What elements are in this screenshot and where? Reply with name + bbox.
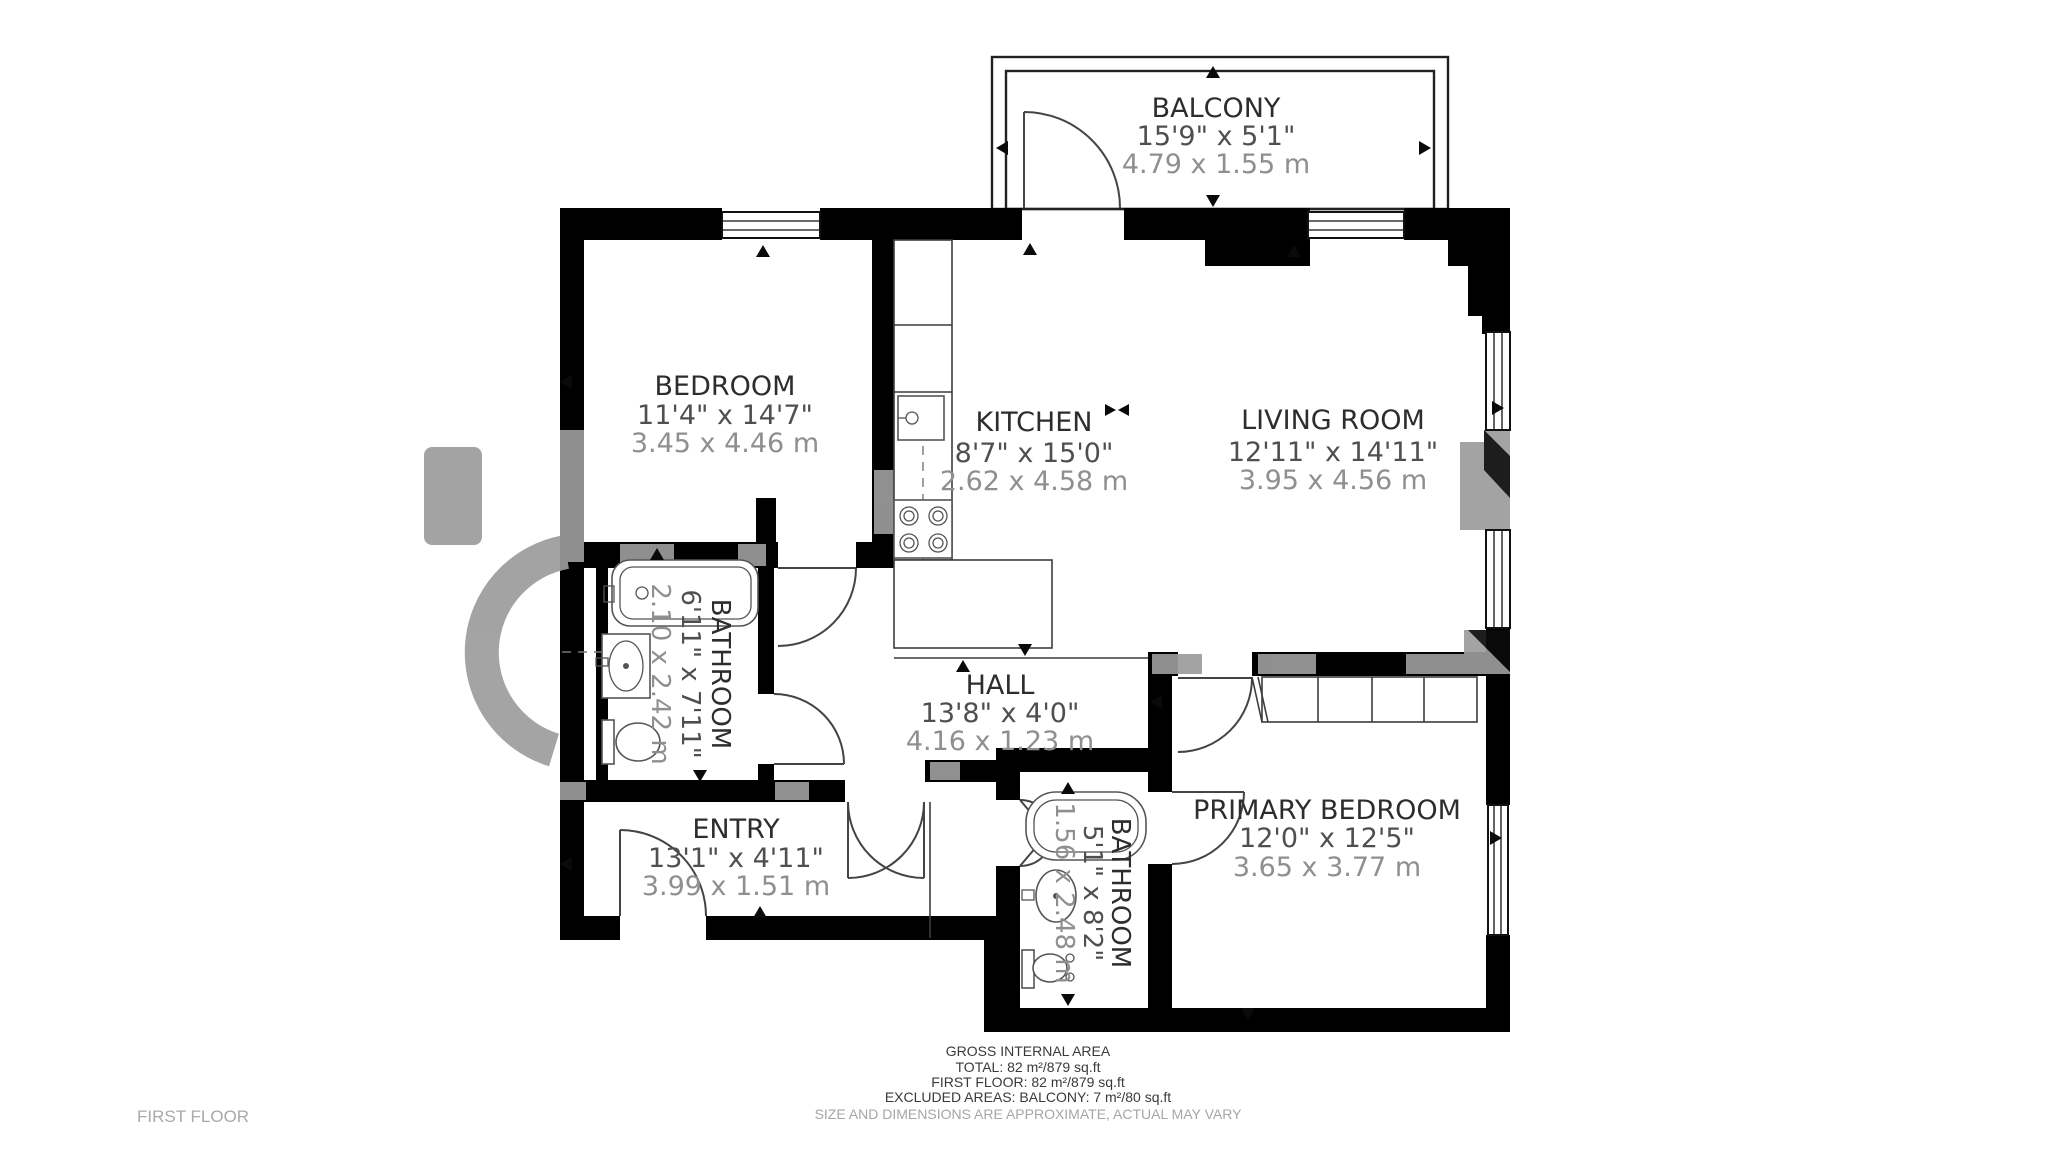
entry-hall-double-doors [848,802,924,878]
room-metric: 2.10 x 2.42 m [645,583,675,764]
room-name: KITCHEN [976,407,1093,438]
disclaimer: SIZE AND DIMENSIONS ARE APPROXIMATE, ACT… [815,1106,1243,1122]
room-metric: 1.56 x 2.48 m [1049,802,1079,983]
room-metric: 3.45 x 4.46 m [631,428,819,459]
room-label-hall: HALL 13'8" x 4'0" 4.16 x 1.23 m [906,670,1094,757]
window-living-top [1308,212,1404,238]
primary-bedroom-door-top [1178,678,1252,752]
kitchen-peninsula [894,560,1052,648]
room-label-bathroom-2: BATHROOM 5'1" x 8'2" 1.56 x 2.48 m [1049,802,1135,983]
area-summary: GROSS INTERNAL AREA TOTAL: 82 m²/879 sq.… [815,1043,1243,1122]
room-metric: 2.62 x 4.58 m [940,466,1128,497]
room-imperial: 12'0" x 12'5" [1239,823,1415,854]
room-name: HALL [966,670,1035,701]
room-name: BATHROOM [705,599,735,749]
window-living-right-1 [1486,332,1510,430]
room-imperial: 13'1" x 4'11" [648,843,824,874]
room-name: PRIMARY BEDROOM [1193,795,1461,826]
stove [894,500,952,558]
total-area: TOTAL: 82 m²/879 sq.ft [956,1059,1101,1075]
gross-internal-area-heading: GROSS INTERNAL AREA [946,1043,1111,1059]
room-label-bedroom: BEDROOM 11'4" x 14'7" 3.45 x 4.46 m [631,371,819,459]
room-label-primary-bedroom: PRIMARY BEDROOM 12'0" x 12'5" 3.65 x 3.7… [1193,795,1461,883]
window-primary-bedroom [1486,795,1510,945]
excluded-areas: EXCLUDED AREAS: BALCONY: 7 m²/80 sq.ft [885,1089,1171,1105]
room-label-balcony: BALCONY 15'9" x 5'1" 4.79 x 1.55 m [1122,93,1310,180]
room-imperial: 13'8" x 4'0" [921,698,1080,729]
room-metric: 4.16 x 1.23 m [906,726,1094,757]
room-imperial: 15'9" x 5'1" [1137,121,1296,152]
room-name: BEDROOM [655,371,796,402]
room-metric: 3.65 x 3.77 m [1233,852,1421,883]
room-name: LIVING ROOM [1241,405,1425,436]
floor-label: FIRST FLOOR [137,1107,249,1126]
room-imperial: 12'11" x 14'11" [1228,437,1438,468]
room-imperial: 11'4" x 14'7" [637,400,813,431]
floor-plan-canvas: BALCONY 15'9" x 5'1" 4.79 x 1.55 m BEDRO… [0,0,2048,1152]
bathroom-sink [596,634,650,698]
window-living-right-2 [1486,530,1510,628]
room-label-bathroom: BATHROOM 6'11" x 7'11" 2.10 x 2.42 m [645,583,735,764]
bedroom-door [778,568,856,646]
room-label-entry: ENTRY 13'1" x 4'11" 3.99 x 1.51 m [642,814,830,902]
room-imperial: 6'11" x 7'11" [675,589,705,758]
room-label-kitchen: KITCHEN 8'7" x 15'0" 2.62 x 4.58 m [940,407,1128,497]
bathroom-door [774,694,844,764]
first-floor-area: FIRST FLOOR: 82 m²/879 sq.ft [931,1074,1125,1090]
room-metric: 3.99 x 1.51 m [642,871,830,902]
room-name: BALCONY [1152,93,1281,124]
room-name: ENTRY [692,814,780,845]
room-metric: 4.79 x 1.55 m [1122,149,1310,180]
closet [1252,677,1477,722]
room-name: BATHROOM [1105,818,1135,968]
room-label-living-room: LIVING ROOM 12'11" x 14'11" 3.95 x 4.56 … [1228,405,1438,496]
balcony-door [1024,112,1120,208]
window-bedroom-top [722,212,820,238]
room-metric: 3.95 x 4.56 m [1239,465,1427,496]
room-imperial: 8'7" x 15'0" [955,438,1114,469]
room-imperial: 5'1" x 8'2" [1077,825,1107,961]
